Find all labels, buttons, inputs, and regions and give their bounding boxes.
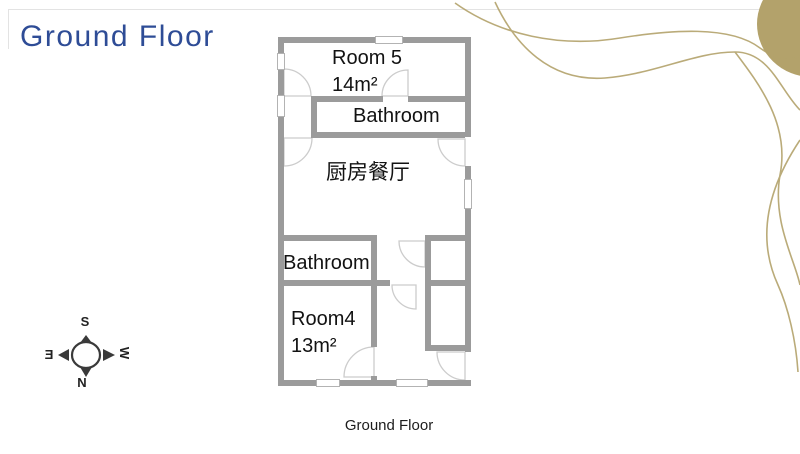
wall-segment [278, 37, 284, 53]
door-arc [438, 139, 465, 166]
compass-point-right [103, 349, 115, 361]
door-arc [437, 352, 465, 380]
window [277, 95, 285, 117]
compass-letter-s: S [81, 314, 90, 329]
compass-letter-n: N [77, 375, 86, 390]
wall-segment [465, 37, 471, 137]
room5-area: 14m² [332, 72, 402, 99]
slide-canvas: Ground Floor Room 5 14m² Bathroom 厨房餐厅 B… [0, 0, 800, 454]
wall-segment [278, 70, 284, 95]
wall-segment [428, 380, 471, 386]
window [396, 379, 428, 387]
wall-segment [278, 280, 390, 286]
window [316, 379, 340, 387]
compass-point-left [58, 349, 69, 361]
kitchen-dining-label: 厨房餐厅 [326, 159, 410, 186]
floor-caption: Ground Floor [289, 417, 489, 434]
compass-rose: S N E W [30, 300, 130, 395]
wall-segment [340, 380, 396, 386]
wall-segment [278, 117, 284, 386]
door-arc [392, 285, 416, 309]
wall-segment [425, 280, 465, 286]
compass-letter-e: E [44, 347, 53, 362]
wall-segment [425, 345, 465, 351]
door-arc [284, 138, 312, 166]
window [277, 53, 285, 70]
bathroom-top-label: Bathroom [353, 103, 440, 130]
door-arc [284, 69, 311, 96]
compass-letter-w: W [117, 347, 130, 360]
wall-segment [278, 380, 316, 386]
wall-segment [403, 37, 471, 43]
wall-segment [311, 96, 383, 102]
wall-segment [278, 37, 375, 43]
wall-segment [465, 209, 471, 352]
wall-segment [311, 132, 465, 138]
room5-name: Room 5 [332, 45, 402, 72]
wall-segment [425, 235, 431, 351]
door-arc [399, 241, 425, 267]
window [464, 179, 472, 209]
room4-label: Room4 13m² [291, 306, 355, 360]
window [375, 36, 403, 44]
wall-segment [465, 166, 471, 179]
room4-area: 13m² [291, 333, 355, 360]
wall-segment [371, 376, 377, 382]
room5-label: Room 5 14m² [332, 45, 402, 99]
wall-segment [278, 235, 377, 241]
wall-segment [408, 96, 465, 102]
compass-circle [72, 342, 100, 368]
bathroom-bottom-label: Bathroom [283, 250, 370, 277]
room4-name: Room4 [291, 306, 355, 333]
wall-segment [371, 235, 377, 347]
wall-segment [425, 235, 465, 241]
